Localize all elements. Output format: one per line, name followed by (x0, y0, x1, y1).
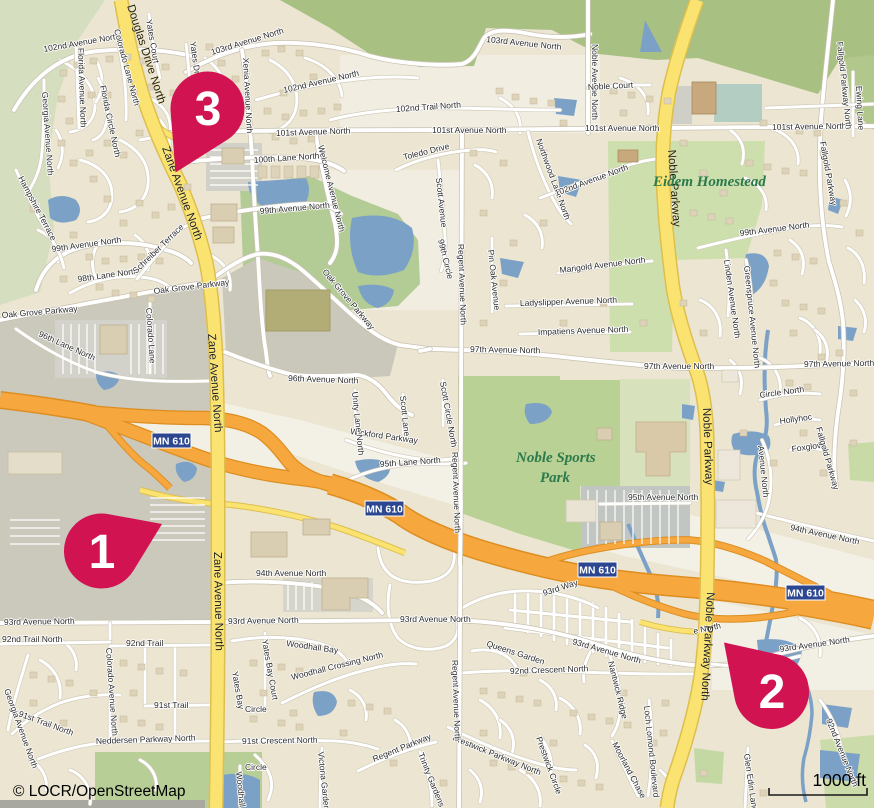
svg-text:92nd Trail: 92nd Trail (126, 638, 163, 648)
svg-text:92nd Trail North: 92nd Trail North (2, 634, 63, 644)
svg-text:MN 610: MN 610 (366, 504, 403, 516)
svg-text:93rd Avenue North: 93rd Avenue North (4, 616, 75, 627)
svg-text:95th Avenue North: 95th Avenue North (628, 492, 699, 502)
svg-text:MN 610: MN 610 (579, 565, 616, 577)
svg-text:94th Avenue North: 94th Avenue North (256, 568, 327, 578)
svg-text:Eidem Homestead: Eidem Homestead (652, 174, 766, 190)
svg-text:97th Avenue North: 97th Avenue North (804, 358, 874, 369)
svg-text:101st Avenue North: 101st Avenue North (585, 123, 660, 133)
svg-text:Park: Park (540, 470, 571, 486)
svg-text:91st Trail: 91st Trail (154, 700, 189, 710)
svg-text:91st Crescent North: 91st Crescent North (242, 735, 318, 746)
svg-text:93rd Avenue North: 93rd Avenue North (400, 614, 471, 624)
svg-text:MN 610: MN 610 (787, 588, 824, 600)
svg-text:97th Avenue North: 97th Avenue North (470, 344, 541, 355)
svg-text:3: 3 (195, 83, 222, 136)
svg-text:Zane Avenue North: Zane Avenue North (211, 552, 225, 651)
svg-text:101st Avenue North: 101st Avenue North (772, 121, 847, 132)
svg-text:MN 610: MN 610 (153, 436, 190, 448)
svg-text:101st Avenue North: 101st Avenue North (432, 125, 507, 135)
svg-text:1000 ft: 1000 ft (812, 770, 866, 790)
svg-text:1: 1 (89, 526, 116, 579)
svg-text:Circle: Circle (245, 704, 267, 714)
svg-text:2: 2 (759, 666, 786, 719)
svg-text:Circle: Circle (245, 762, 267, 772)
svg-text:© LOCR/OpenStreetMap: © LOCR/OpenStreetMap (13, 783, 186, 800)
svg-text:97th Avenue North: 97th Avenue North (644, 361, 715, 371)
svg-text:Noble Sports: Noble Sports (515, 450, 596, 466)
svg-text:93rd Avenue North: 93rd Avenue North (228, 615, 299, 626)
